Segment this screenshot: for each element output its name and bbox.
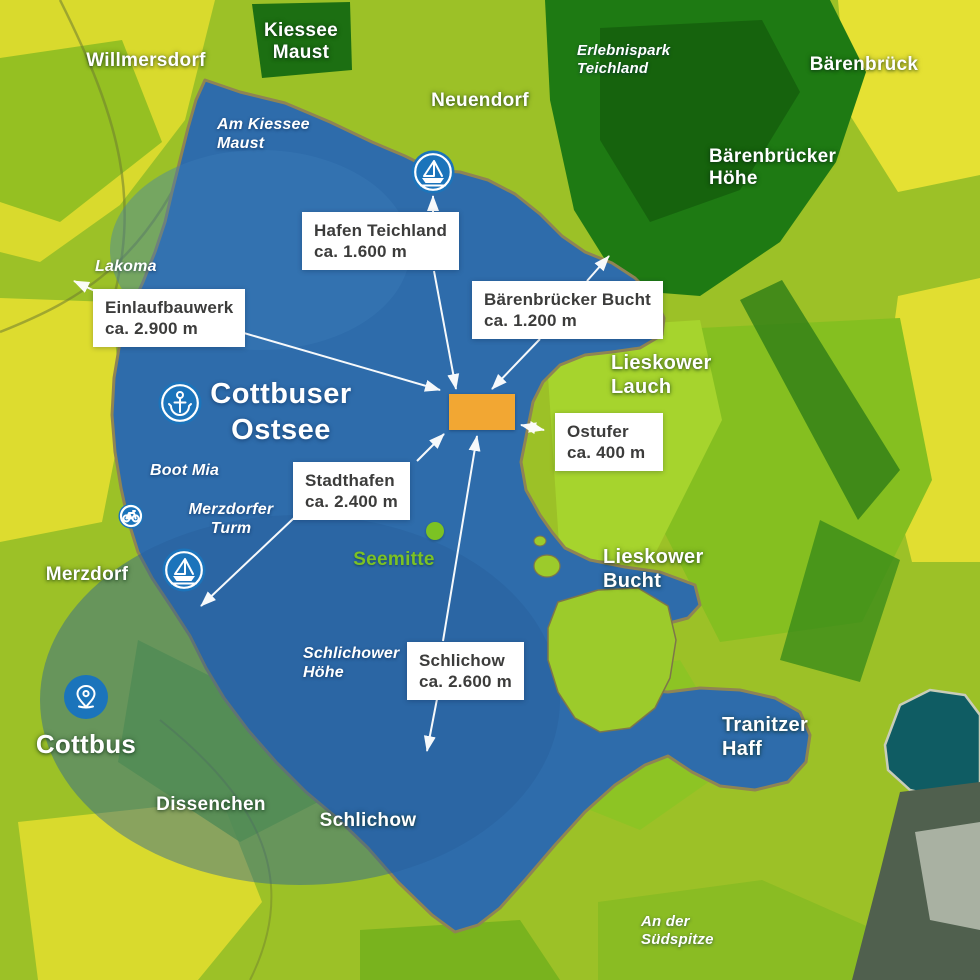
- callout-baerenbruecker-bucht[interactable]: Bärenbrücker Bucht ca. 1.200 m: [472, 281, 663, 339]
- lake-badge[interactable]: [158, 381, 203, 426]
- anchor-icon: [158, 381, 203, 426]
- place-willmersdorf: Willmersdorf: [86, 50, 206, 72]
- seemitte-dot-icon[interactable]: [426, 522, 444, 540]
- callout-hafen-teichland[interactable]: Hafen Teichland ca. 1.600 m: [302, 212, 459, 270]
- label-merzdorfer-turm: Merzdorfer Turm: [189, 501, 274, 539]
- callout-einlaufbauwerk[interactable]: Einlaufbauwerk ca. 2.900 m: [93, 289, 245, 347]
- place-baerenbrueck: Bärenbrück: [810, 54, 919, 76]
- sailboat-icon: [411, 150, 456, 195]
- place-merzdorf: Merzdorf: [46, 564, 129, 586]
- place-lieskower-bucht: Lieskower Bucht: [603, 546, 704, 593]
- seemitte-label: Seemitte: [353, 549, 435, 571]
- reference-area-marker[interactable]: [449, 394, 515, 430]
- location-pin-icon: [63, 674, 109, 720]
- place-lieskower-lauch: Lieskower Lauch: [611, 352, 712, 399]
- bicycle-icon: [118, 503, 144, 529]
- label-an-der-suedspitze: An der Südspitze: [641, 913, 714, 948]
- callout-title: Einlaufbauwerk: [105, 298, 233, 317]
- lake-title: Cottbuser Ostsee: [210, 376, 351, 449]
- label-boot-mia: Boot Mia: [150, 462, 219, 481]
- harbor-marker-merzdorf[interactable]: [162, 548, 207, 593]
- place-baerenbruecker-hoehe: Bärenbrücker Höhe: [709, 146, 836, 191]
- callout-title: Bärenbrücker Bucht: [484, 290, 651, 309]
- callout-ostufer[interactable]: Ostufer ca. 400 m: [555, 413, 663, 471]
- callout-title: Ostufer: [567, 422, 629, 441]
- sailboat-icon: [162, 548, 207, 593]
- callout-distance: ca. 1.200 m: [484, 310, 651, 331]
- cottbus-marker[interactable]: [63, 674, 109, 720]
- place-tranitzer-haff: Tranitzer Haff: [722, 714, 808, 761]
- callout-distance: ca. 2.900 m: [105, 318, 233, 339]
- callout-title: Stadthafen: [305, 471, 395, 490]
- label-erlebnispark-teichland: Erlebnispark Teichland: [577, 42, 670, 77]
- bike-route-marker[interactable]: [118, 503, 144, 529]
- place-dissenchen: Dissenchen: [156, 794, 266, 816]
- place-cottbus: Cottbus: [36, 729, 136, 760]
- callout-distance: ca. 1.600 m: [314, 241, 447, 262]
- callout-schlichow[interactable]: Schlichow ca. 2.600 m: [407, 642, 524, 700]
- harbor-marker-maust[interactable]: [411, 150, 456, 195]
- callout-distance: ca. 400 m: [567, 442, 651, 463]
- map-canvas: Seemitte Hafen Teichland ca. 1.600 m Ein…: [0, 0, 980, 980]
- label-am-kiessee-maust: Am Kiessee Maust: [217, 116, 310, 154]
- callout-distance: ca. 2.400 m: [305, 491, 398, 512]
- place-neuendorf: Neuendorf: [431, 90, 529, 112]
- place-schlichow: Schlichow: [320, 810, 417, 832]
- callout-stadthafen[interactable]: Stadthafen ca. 2.400 m: [293, 462, 410, 520]
- callout-title: Schlichow: [419, 651, 505, 670]
- callout-distance: ca. 2.600 m: [419, 671, 512, 692]
- label-lakoma: Lakoma: [95, 258, 157, 277]
- place-kiessee-maust: Kiessee Maust: [264, 20, 338, 65]
- label-schlichower-hoehe: Schlichower Höhe: [303, 645, 399, 683]
- callout-title: Hafen Teichland: [314, 221, 447, 240]
